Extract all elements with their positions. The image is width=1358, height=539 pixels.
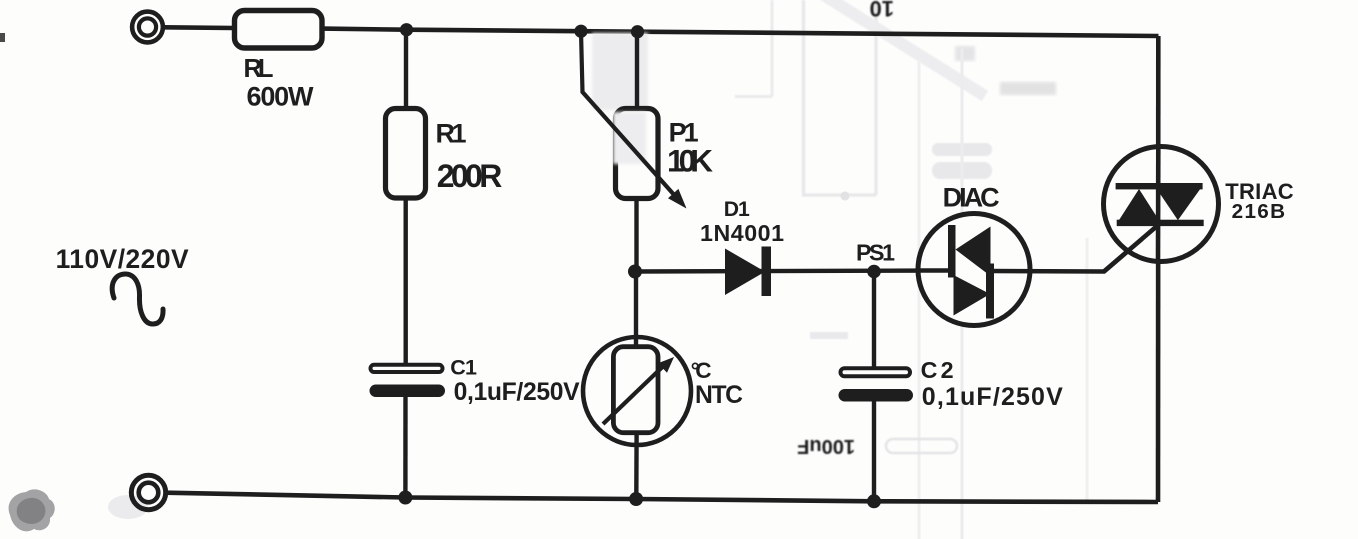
svg-text:PS1: PS1 (856, 240, 895, 266)
svg-text:C1: C1 (450, 356, 477, 380)
svg-text:216B: 216B (1232, 200, 1286, 223)
svg-text:100uF: 100uF (797, 435, 855, 457)
svg-text:1N4001: 1N4001 (700, 220, 784, 246)
svg-text:10K: 10K (667, 143, 713, 179)
svg-text:0,1uF/250V: 0,1uF/250V (454, 379, 581, 406)
svg-text:°C: °C (691, 358, 712, 383)
svg-text:600W: 600W (247, 82, 315, 112)
svg-text:R1: R1 (436, 118, 467, 148)
svg-text:110V/220V: 110V/220V (56, 244, 189, 274)
svg-text:DIAC: DIAC (943, 183, 1000, 213)
svg-text:200R: 200R (437, 158, 503, 194)
svg-text:NTC: NTC (695, 382, 743, 409)
svg-text:RL: RL (244, 55, 274, 83)
svg-text:D1: D1 (724, 198, 750, 221)
svg-text:0,1uF/250V: 0,1uF/250V (922, 383, 1063, 411)
svg-text:C2: C2 (921, 357, 954, 383)
svg-text:10: 10 (870, 0, 894, 21)
